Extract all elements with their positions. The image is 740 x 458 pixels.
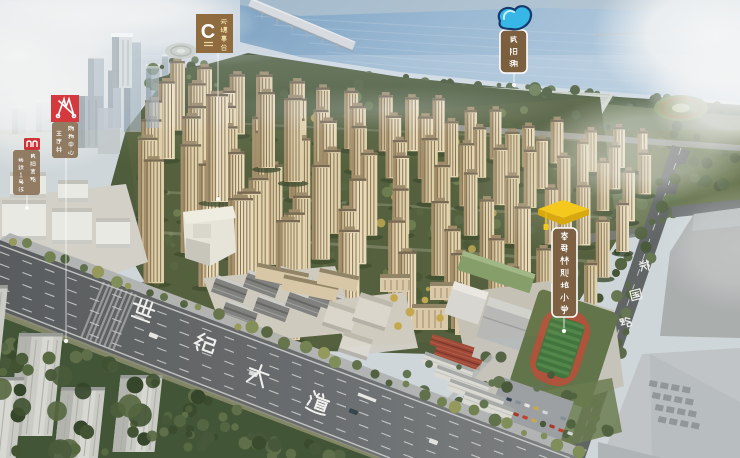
svg-text:C: C (201, 21, 215, 43)
